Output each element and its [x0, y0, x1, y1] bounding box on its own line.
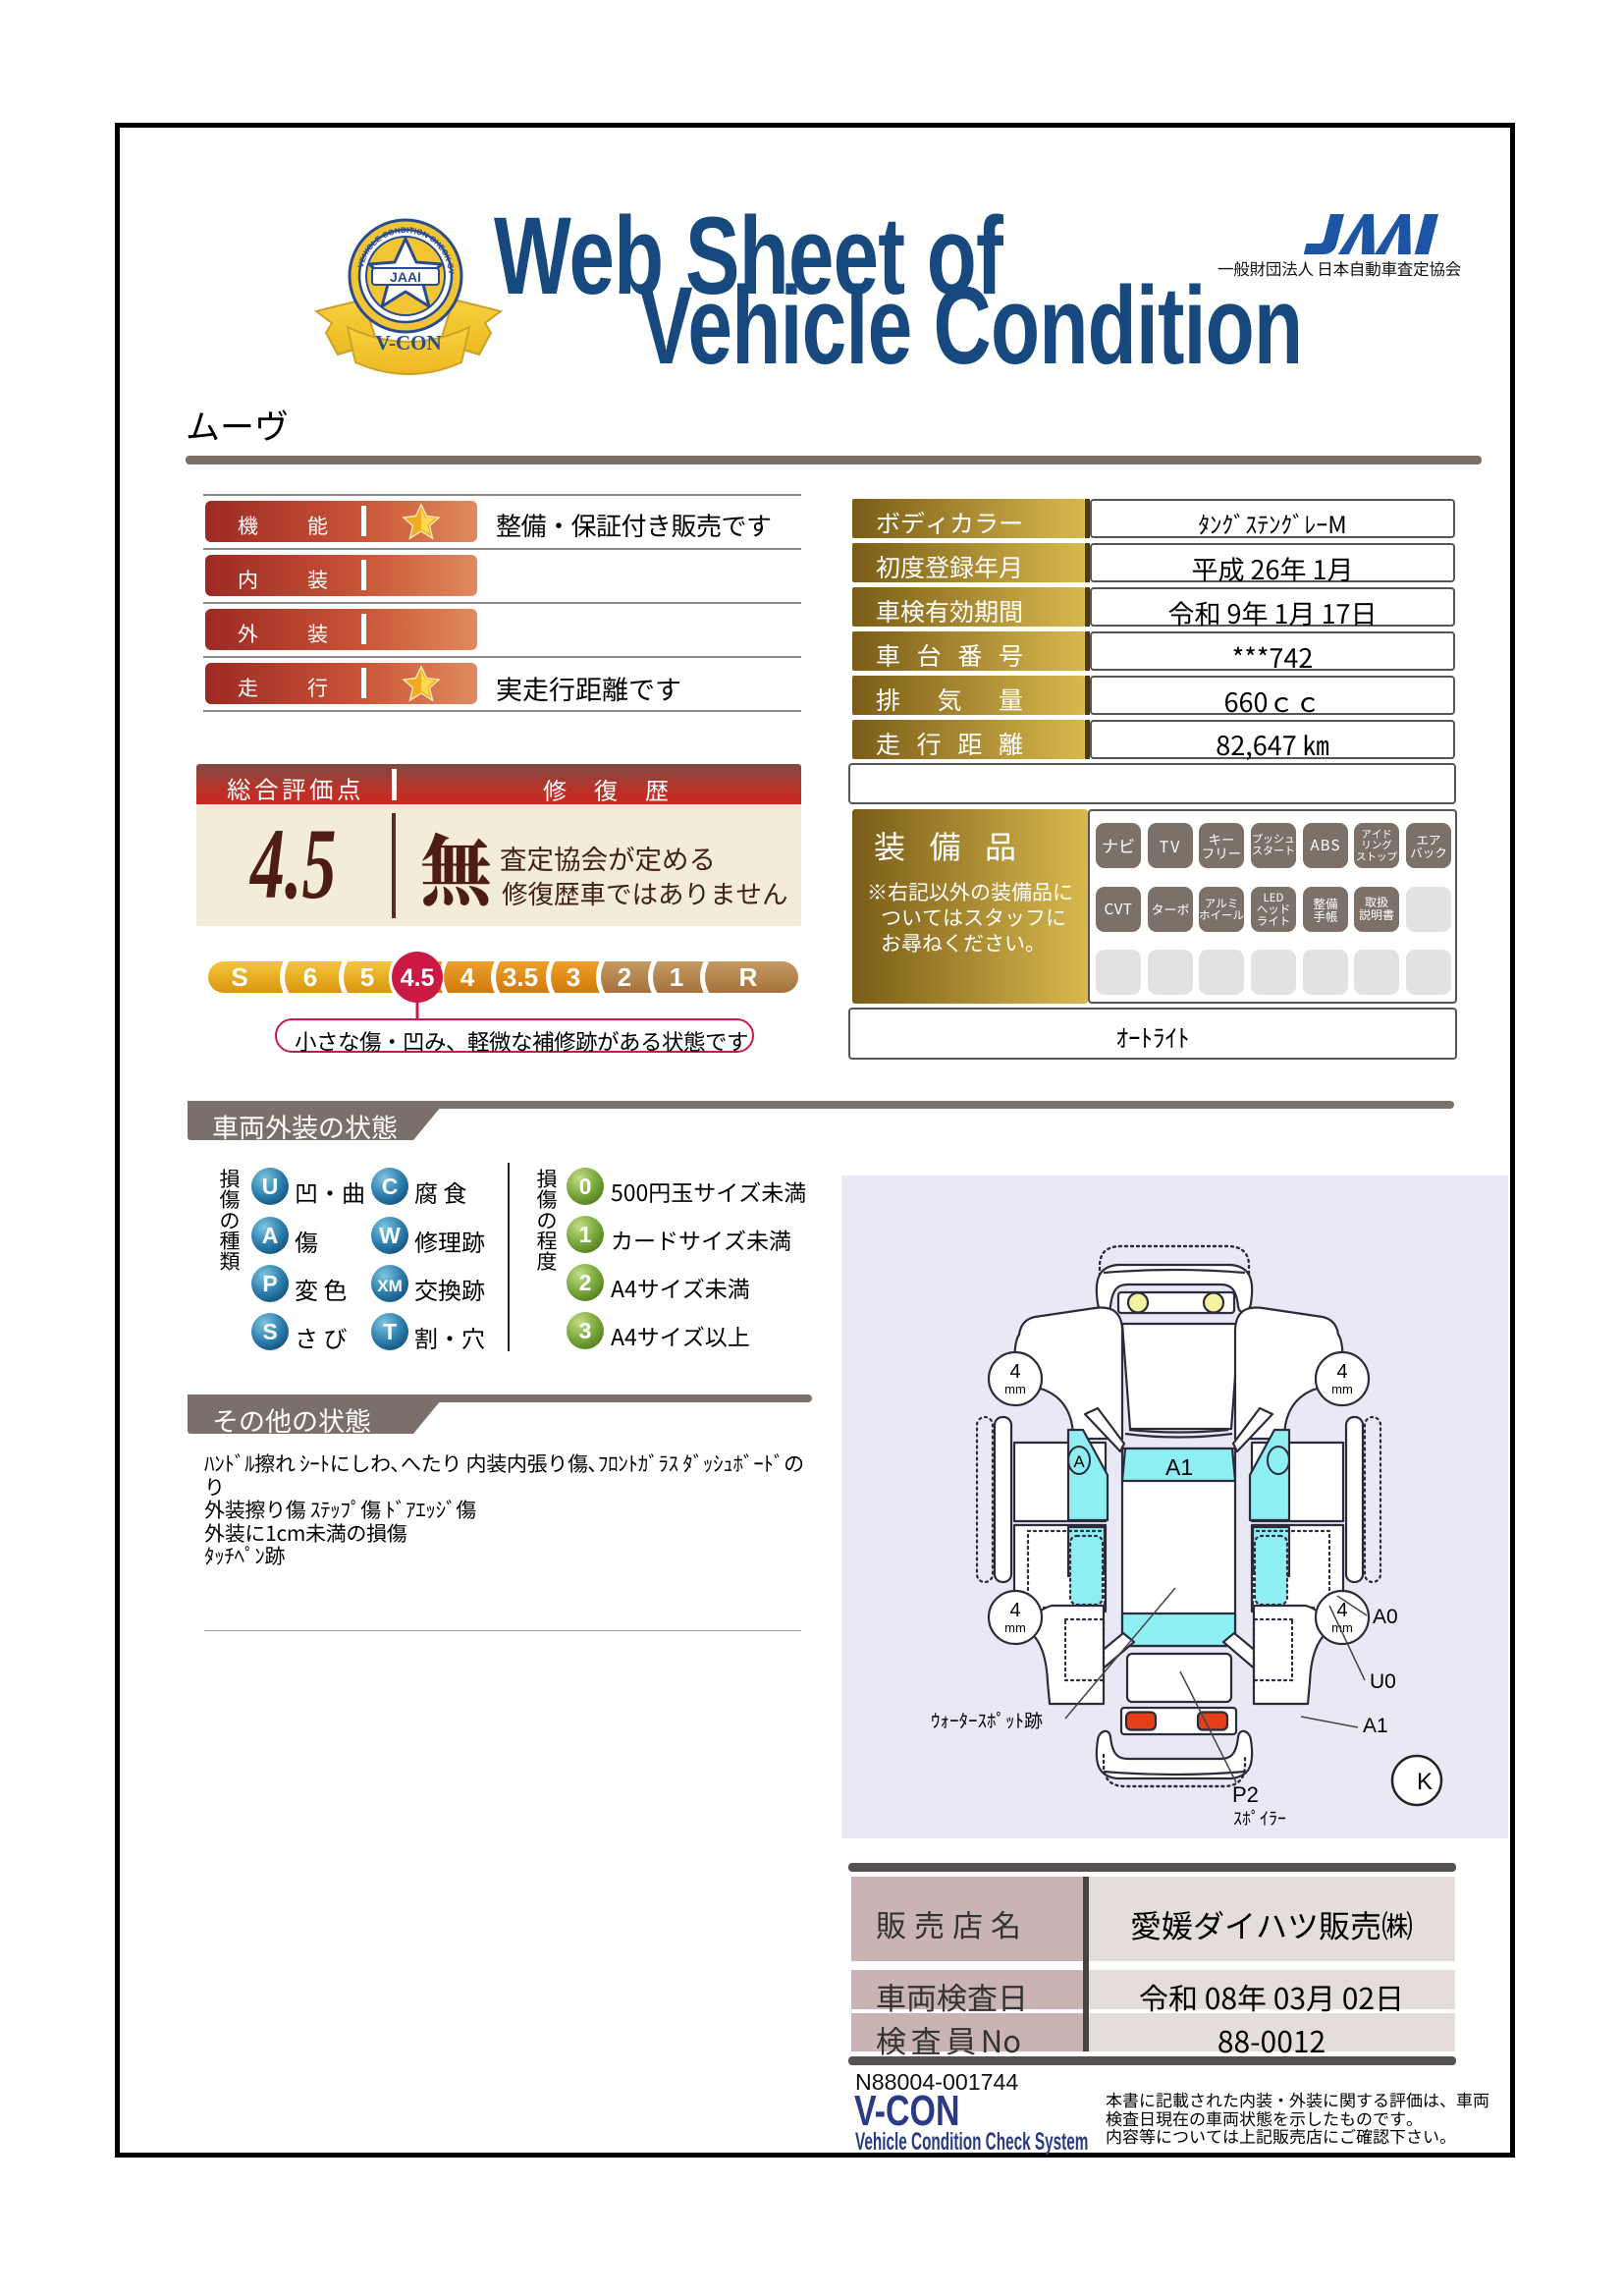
svg-text:T: T [383, 1319, 397, 1344]
svg-text:0: 0 [579, 1174, 592, 1199]
svg-text:K: K [1417, 1769, 1433, 1795]
svg-text:4: 4 [1009, 1361, 1020, 1383]
svg-text:6: 6 [303, 962, 317, 992]
svg-text:A1: A1 [1165, 1454, 1193, 1480]
svg-text:P2: P2 [1232, 1782, 1259, 1807]
svg-text:3: 3 [579, 1318, 592, 1343]
svg-text:4: 4 [1009, 1600, 1020, 1621]
svg-text:C: C [382, 1174, 399, 1199]
svg-text:2: 2 [579, 1270, 592, 1295]
svg-text:S: S [231, 962, 247, 992]
svg-text:4.5: 4.5 [401, 964, 435, 992]
svg-text:P: P [262, 1271, 277, 1296]
svg-text:4: 4 [1336, 1361, 1347, 1383]
svg-text:2: 2 [618, 962, 631, 992]
svg-text:1: 1 [670, 962, 683, 992]
svg-text:U0: U0 [1370, 1670, 1396, 1693]
svg-text:JAAI: JAAI [390, 269, 421, 285]
svg-text:3: 3 [567, 962, 580, 992]
svg-text:A1: A1 [1363, 1715, 1388, 1737]
svg-text:4: 4 [1336, 1600, 1347, 1621]
svg-text:S: S [262, 1319, 277, 1344]
svg-text:mm: mm [1004, 1382, 1026, 1396]
svg-text:A0: A0 [1373, 1606, 1398, 1628]
svg-text:mm: mm [1331, 1382, 1353, 1396]
svg-text:V-CON: V-CON [375, 331, 441, 355]
svg-text:4: 4 [460, 962, 475, 992]
svg-text:ｳｫｰﾀｰｽﾎﾟｯﾄ跡: ｳｫｰﾀｰｽﾎﾟｯﾄ跡 [931, 1707, 1043, 1733]
svg-text:ｽﾎﾟｲﾗｰ: ｽﾎﾟｲﾗｰ [1233, 1805, 1286, 1831]
svg-text:3.5: 3.5 [503, 962, 538, 992]
svg-text:XM: XM [377, 1277, 403, 1295]
svg-text:R: R [739, 962, 758, 992]
svg-text:1: 1 [579, 1222, 592, 1247]
svg-text:mm: mm [1004, 1620, 1026, 1635]
svg-text:5: 5 [360, 962, 374, 992]
svg-text:U: U [262, 1174, 279, 1199]
svg-text:W: W [379, 1223, 401, 1248]
svg-text:A: A [1073, 1452, 1085, 1471]
svg-text:A: A [262, 1223, 279, 1248]
